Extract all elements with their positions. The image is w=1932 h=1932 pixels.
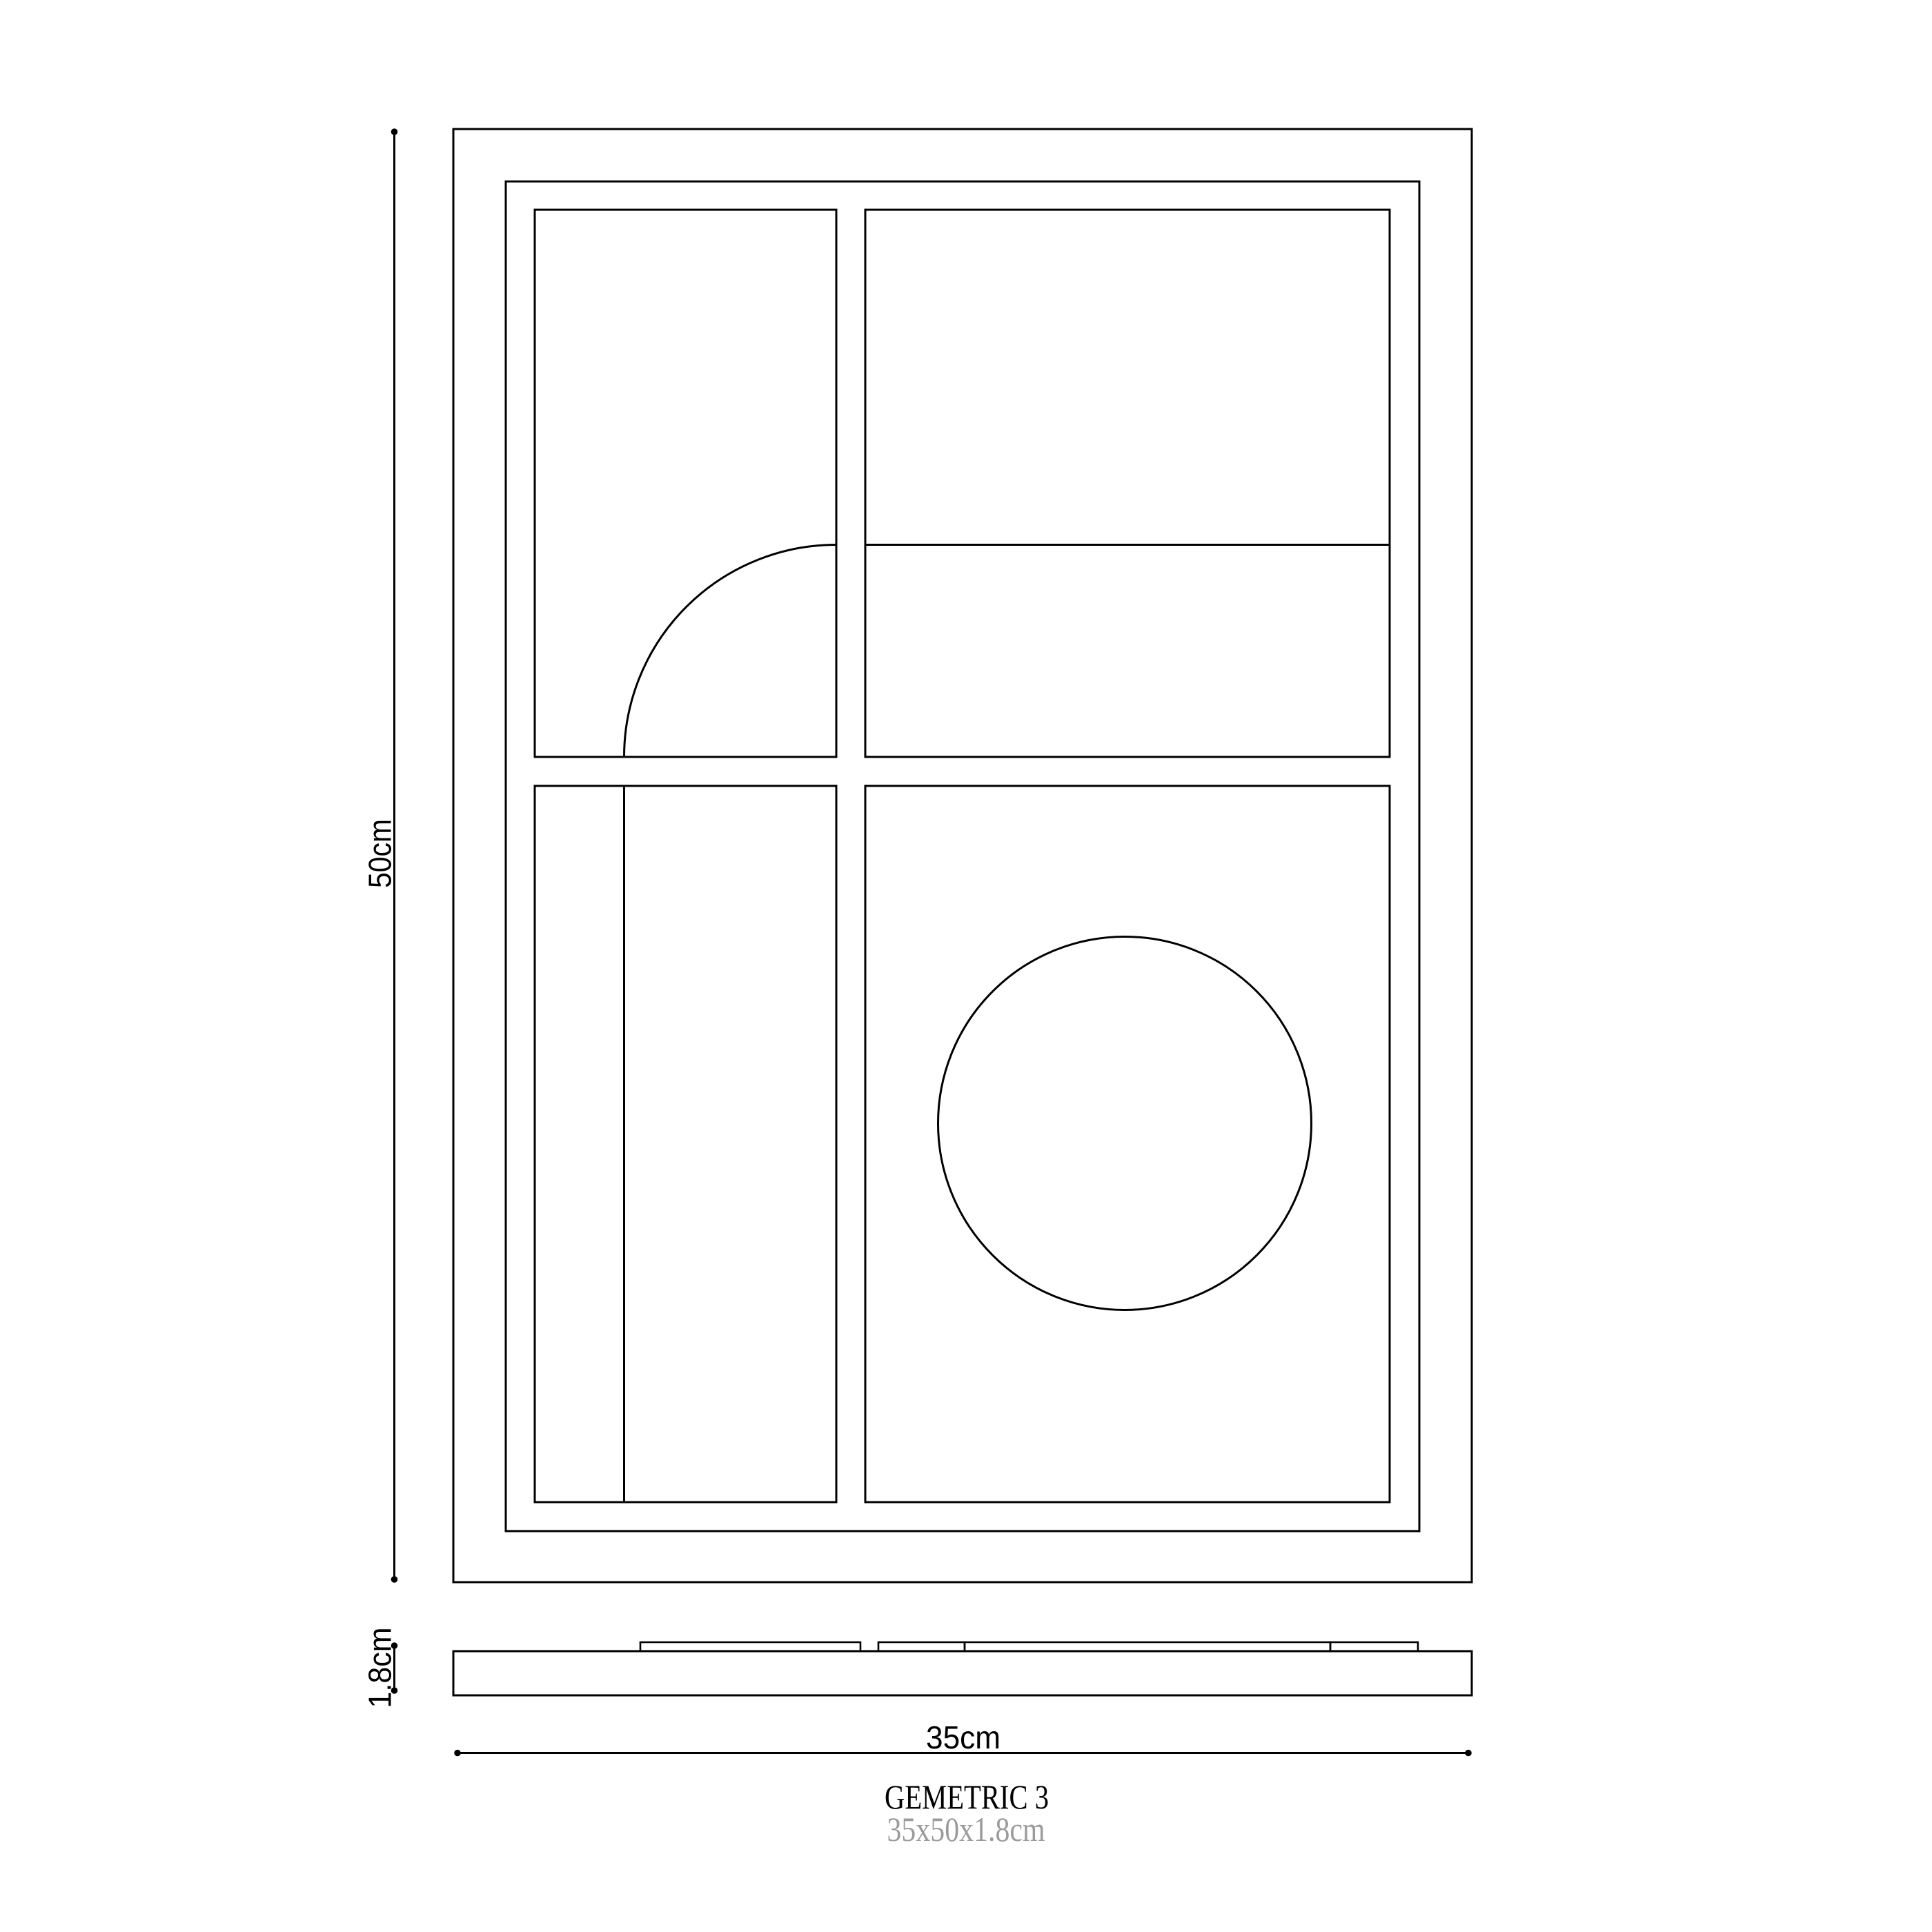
svg-text:35x50x1.8cm: 35x50x1.8cm <box>887 1810 1045 1849</box>
svg-text:35cm: 35cm <box>926 1719 1000 1755</box>
svg-text:50cm: 50cm <box>362 819 398 888</box>
svg-text:1.8cm: 1.8cm <box>362 1628 398 1708</box>
